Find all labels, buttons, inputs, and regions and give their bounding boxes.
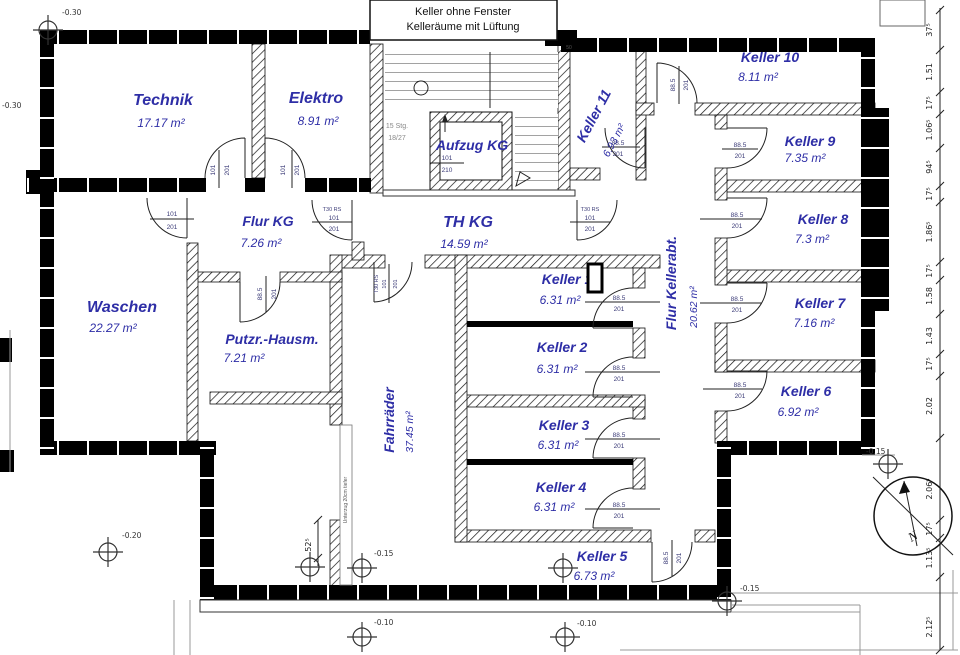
room-area-elektro: 8.91 m² — [298, 114, 340, 128]
dim-label: 2.02 — [925, 397, 934, 415]
room-area-keller3: 6.31 m² — [538, 438, 580, 452]
room-area-keller4: 6.31 m² — [534, 500, 576, 514]
room-area-keller10: 8.11 m² — [738, 70, 779, 84]
door-label: 210 — [442, 167, 453, 174]
door-label: T30 RS — [581, 207, 600, 213]
door-label: T30 RS — [323, 207, 342, 213]
door-label: 88.5 — [257, 287, 264, 300]
door-label: 88.5 — [613, 432, 626, 439]
dim-label: 1.51 — [925, 63, 934, 81]
door-label: 201 — [585, 226, 596, 233]
door-label: 101 — [280, 164, 287, 175]
unterzug-note: Unterzug 20cm tiefer — [343, 476, 349, 523]
door-label: 101 — [210, 164, 217, 175]
door-label: 101 — [167, 211, 178, 218]
dim-label: 17⁵ — [925, 264, 934, 277]
door-label: 101 — [382, 279, 388, 288]
room-label-waschen: Waschen — [87, 299, 157, 316]
door-label: 201 — [614, 306, 625, 313]
dim-label: 52⁵ — [304, 538, 313, 551]
dim-label: 17⁵ — [925, 96, 934, 109]
door-label: 201 — [614, 376, 625, 383]
door-arc-waschen — [147, 198, 187, 238]
stairs-note-line1: 15 Stg. — [386, 123, 408, 130]
door-label: 201 — [613, 151, 624, 158]
room-area-th-kg: 14.59 m² — [440, 237, 488, 251]
door-label: 201 — [393, 279, 399, 288]
door-arc-keller10 — [657, 63, 697, 103]
room-area-keller5: 6.73 m² — [574, 569, 616, 583]
room-label-keller9: Keller 9 — [785, 133, 836, 149]
stair-treads-upper — [385, 52, 558, 108]
door-label: 201 — [683, 79, 690, 90]
room-area-technik: 17.17 m² — [137, 116, 185, 130]
door-label: 201 — [614, 443, 625, 450]
compass-north-label: N — [904, 527, 921, 545]
door-arc-keller6 — [727, 371, 767, 411]
door-label: T30 RS — [374, 274, 380, 293]
room-label-keller10: Keller 10 — [741, 49, 800, 65]
door-label: 101 — [329, 215, 340, 222]
roof-notch — [880, 0, 925, 26]
level-label: -0.15 — [866, 447, 886, 456]
survey-cross-icon — [550, 622, 580, 652]
level-label: -0.30 — [2, 101, 22, 110]
room-area-keller9: 7.35 m² — [785, 151, 827, 165]
room-area-keller6: 6.92 m² — [778, 405, 820, 419]
door-label: 88.5 — [734, 382, 747, 389]
room-label-putzraum: Putzr.-Hausm. — [225, 331, 318, 347]
level-label: -0.10 — [374, 618, 394, 627]
door-label: 101 — [442, 155, 453, 162]
survey-cross-icon — [93, 537, 123, 567]
room-label-flur-kg: Flur KG — [242, 213, 293, 229]
door-label: 88.5 — [731, 212, 744, 219]
survey-cross-icon — [347, 622, 377, 652]
room-label-aufzug: Aufzug KG — [435, 137, 508, 153]
door-label: 201 — [167, 224, 178, 231]
level-label: -0.15 — [740, 584, 760, 593]
stairs-note-line2: 18/27 — [388, 135, 406, 142]
stairwell — [383, 52, 575, 196]
survey-cross-icon — [295, 552, 325, 582]
room-label-flur-kellerabt: Flur Kellerabt. — [663, 236, 679, 330]
dimension-chain-right: 37⁵ 1.51 17⁵ 1.06⁵ 94⁵ 17⁵ 1.86⁵ 17⁵ 1.5… — [925, 6, 944, 654]
header-note-line1: Keller ohne Fenster — [415, 6, 511, 18]
room-label-th-kg: TH KG — [443, 214, 493, 231]
room-area-putzraum: 7.21 m² — [224, 351, 266, 365]
door-label: 88.5 — [612, 140, 625, 147]
room-area-keller7: 7.16 m² — [794, 316, 836, 330]
door-label: 88.5 — [613, 365, 626, 372]
header-note-line2: Kelleräume mit Lüftung — [406, 21, 519, 33]
shaft-box — [588, 264, 602, 292]
dim-label: 1.43 — [925, 327, 934, 345]
compass-needle-icon — [899, 481, 910, 494]
dim-label: 17⁵ — [925, 187, 934, 200]
room-label-keller3: Keller 3 — [539, 417, 590, 433]
level-label: -0.10 — [577, 619, 597, 628]
room-label-keller5: Keller 5 — [577, 548, 628, 564]
compass: N — [873, 477, 953, 555]
dim-label: 2.12⁵ — [925, 616, 934, 637]
door-label: 201 — [732, 223, 743, 230]
door-label: 201 — [224, 164, 231, 175]
door-label: 201 — [735, 153, 746, 160]
room-area-flur-kg: 7.26 m² — [241, 236, 283, 250]
room-label-keller1: Keller 1 — [542, 271, 593, 287]
door-label: 88.5 — [663, 551, 670, 564]
dim-label: 1.86⁵ — [925, 221, 934, 242]
dim-label: 1.58 — [925, 287, 934, 305]
level-label: -0.30 — [62, 8, 82, 17]
room-area-keller8: 7.3 m² — [795, 232, 830, 246]
room-label-keller11: Keller 11 — [573, 86, 614, 144]
door-label: 88.5 — [613, 295, 626, 302]
level-label: -0.15 — [374, 549, 394, 558]
level-label: -0.20 — [122, 531, 142, 540]
dim-label: 37⁵ — [925, 23, 934, 36]
room-label-keller8: Keller 8 — [798, 211, 849, 227]
door-label: 201 — [735, 393, 746, 400]
door-label: 201 — [614, 513, 625, 520]
room-label-keller2: Keller 2 — [537, 339, 588, 355]
door-label: 201 — [732, 307, 743, 314]
room-label-keller6: Keller 6 — [781, 383, 832, 399]
room-area-waschen: 22.27 m² — [88, 321, 137, 335]
dim-label: 1.06⁵ — [925, 119, 934, 140]
door-label: 201 — [271, 288, 278, 299]
room-area-keller2: 6.31 m² — [537, 362, 579, 376]
stair-treads-right — [515, 114, 558, 188]
room-label-technik: Technik — [133, 92, 194, 109]
door-label: 201 — [294, 164, 301, 175]
dim-note-50: 50 — [566, 45, 572, 51]
dim-label: 17⁵ — [925, 357, 934, 370]
room-label-keller7: Keller 7 — [795, 295, 847, 311]
footing-strip — [200, 600, 731, 612]
door-label: 201 — [676, 552, 683, 563]
floor-plan: Keller ohne Fenster Kelleräume mit Lüftu… — [0, 0, 960, 655]
door-label: 88.5 — [734, 142, 747, 149]
dim-label: 94⁵ — [925, 160, 934, 173]
door-arc-thkg-right — [577, 200, 617, 240]
door-label: 88.5 — [731, 296, 744, 303]
room-label-elektro: Elektro — [289, 90, 343, 107]
door-label: 88.5 — [613, 502, 626, 509]
room-area-flur-kellerabt: 20.62 m² — [688, 286, 700, 329]
door-label: 201 — [329, 226, 340, 233]
floor-plan-canvas: Keller ohne Fenster Kelleräume mit Lüftu… — [0, 0, 960, 655]
room-label-keller4: Keller 4 — [536, 479, 587, 495]
door-label: 101 — [585, 215, 596, 222]
room-area-keller1: 6.31 m² — [540, 293, 582, 307]
room-area-fahrraeder: 37.45 m² — [404, 411, 416, 453]
room-label-fahrraeder: Fahrräder — [381, 386, 397, 453]
door-label: 88.5 — [670, 78, 677, 91]
